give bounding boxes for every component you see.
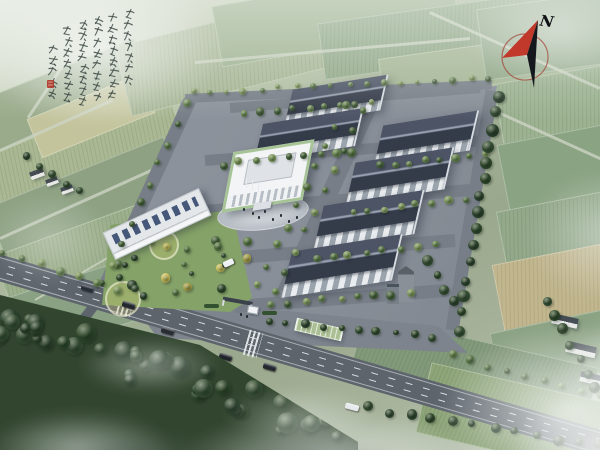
field-path — [195, 37, 470, 63]
tree — [300, 417, 318, 435]
branch-road — [48, 295, 104, 363]
tree — [268, 154, 276, 162]
greenhouse — [294, 317, 344, 340]
calligraphy-stroke — [81, 43, 85, 51]
tree — [543, 297, 552, 306]
tree — [454, 326, 465, 337]
tree — [0, 326, 9, 342]
tree — [482, 150, 490, 158]
tree — [65, 337, 83, 355]
tree — [331, 431, 343, 443]
lane-line — [0, 261, 600, 449]
tree — [99, 280, 105, 286]
solar-panels — [112, 197, 199, 244]
tree — [482, 141, 494, 153]
tree — [30, 327, 40, 337]
tree — [164, 142, 172, 150]
tree — [330, 253, 337, 260]
tree — [411, 200, 418, 207]
farm-field — [0, 136, 187, 265]
tree — [364, 250, 370, 256]
tree — [557, 323, 567, 333]
tree — [183, 283, 192, 292]
tree — [275, 425, 286, 436]
tree — [504, 368, 510, 374]
tree — [354, 293, 361, 300]
silo-tower — [398, 266, 414, 302]
tree — [558, 383, 564, 389]
tree — [351, 101, 357, 107]
tree — [158, 352, 174, 368]
calligraphy-stroke — [95, 83, 99, 90]
tree — [256, 107, 264, 115]
tree — [222, 262, 228, 268]
calligraphy-stroke — [126, 43, 132, 46]
tree — [332, 149, 341, 158]
tree — [245, 380, 263, 398]
fog-patch — [180, 432, 440, 450]
tree — [322, 143, 328, 149]
tree — [451, 154, 459, 162]
farm-field — [347, 314, 599, 439]
tree — [118, 241, 125, 248]
internal-road — [278, 97, 380, 296]
car — [218, 352, 232, 361]
tree — [161, 273, 171, 283]
fog-patch — [530, 290, 600, 450]
tree — [347, 148, 356, 157]
tree — [221, 253, 227, 259]
compass-label: N — [538, 11, 556, 31]
tree — [0, 326, 5, 337]
farm-field — [415, 362, 600, 450]
tree — [318, 295, 325, 302]
tree — [76, 187, 84, 195]
tree — [371, 327, 379, 335]
tree — [360, 107, 367, 114]
tree — [303, 298, 311, 306]
fog-patch — [500, 150, 600, 320]
tree — [381, 207, 388, 214]
tree — [260, 88, 265, 93]
calligraphy-stroke — [95, 23, 99, 25]
tree — [466, 355, 474, 363]
tree — [109, 262, 117, 270]
tree — [295, 83, 300, 88]
tree — [565, 341, 574, 350]
warehouse-facade-doors — [314, 221, 416, 250]
calligraphy-stroke — [65, 77, 70, 78]
tree — [339, 296, 345, 302]
entrance-gate — [221, 295, 263, 318]
garden-ring-path — [149, 230, 179, 260]
calligraphy-stroke — [95, 29, 102, 31]
tree — [322, 187, 328, 193]
tree — [94, 343, 107, 356]
tree — [457, 290, 469, 302]
tree — [191, 388, 205, 402]
warehouse-roof — [376, 111, 477, 155]
tree — [434, 271, 442, 279]
tree — [286, 153, 293, 160]
calligraphy-stroke — [53, 97, 54, 99]
tree — [36, 163, 43, 170]
fog-patch — [480, 380, 600, 450]
tree — [449, 77, 456, 84]
tree — [491, 423, 501, 433]
tree — [444, 196, 452, 204]
tree — [466, 257, 475, 266]
warehouse-facade-doors — [254, 135, 355, 162]
tree — [315, 416, 329, 430]
calligraphy-stroke — [115, 65, 116, 67]
tree — [480, 173, 492, 185]
tree — [273, 240, 281, 248]
guard-booth — [247, 305, 259, 315]
tree — [20, 323, 31, 334]
tree — [468, 420, 475, 427]
tree — [127, 280, 137, 290]
calligraphy-stroke — [80, 94, 85, 95]
tree — [163, 243, 170, 250]
farm-field — [496, 179, 600, 271]
fog-patch — [0, 180, 130, 300]
tree — [486, 124, 499, 137]
tree — [449, 350, 457, 358]
tree — [303, 183, 311, 191]
pedestrian — [296, 216, 298, 219]
tree — [194, 379, 213, 398]
tree — [469, 75, 475, 81]
tree — [149, 350, 169, 370]
calligraphy-stroke — [110, 37, 117, 39]
tree — [307, 105, 314, 112]
calligraphy-seal — [47, 80, 54, 88]
calligraphy-stroke — [112, 47, 115, 55]
tree — [376, 161, 384, 169]
tree — [553, 435, 564, 446]
tree — [422, 156, 429, 163]
tree — [490, 106, 502, 118]
lane-line — [0, 255, 600, 443]
tree — [0, 309, 19, 329]
tree — [485, 76, 491, 82]
calligraphy-stroke — [94, 90, 98, 91]
tree — [577, 355, 585, 363]
tree — [19, 255, 26, 262]
tree — [184, 246, 191, 253]
warehouse-building — [373, 110, 478, 165]
internal-road — [174, 234, 455, 269]
farm-field — [211, 0, 460, 68]
calligraphy-stroke — [111, 14, 114, 22]
dormitory-building — [103, 188, 212, 260]
farm-field — [489, 298, 600, 394]
internal-road — [205, 135, 486, 166]
calligraphy-stroke — [80, 50, 85, 51]
tree — [273, 394, 291, 412]
tree — [407, 289, 415, 297]
calligraphy-stroke — [81, 65, 86, 72]
tree — [93, 279, 101, 287]
fog-patch — [60, 330, 240, 400]
calligraphy-stroke — [96, 94, 100, 101]
tree — [189, 271, 195, 277]
tree — [385, 409, 395, 419]
warehouse-building — [281, 234, 402, 298]
tree — [310, 83, 316, 89]
tree — [321, 413, 335, 427]
fog-patch — [140, 400, 520, 450]
fog-patch — [0, 400, 200, 450]
tree — [466, 153, 472, 159]
tree — [292, 249, 299, 256]
calligraphy-stroke — [124, 23, 132, 25]
tree — [114, 341, 135, 362]
lane-line — [0, 268, 600, 450]
warehouse-facade-doors — [346, 177, 446, 205]
tree — [392, 162, 398, 168]
calligraphy-stroke — [79, 56, 86, 57]
flagpole — [258, 182, 259, 192]
tree — [303, 415, 320, 432]
calligraphy-stroke — [95, 56, 100, 58]
tree — [341, 148, 346, 153]
tree — [277, 412, 299, 434]
farmhouse — [29, 168, 45, 180]
tree — [463, 197, 469, 203]
tree — [386, 291, 395, 300]
tree — [597, 392, 600, 399]
pedestrian — [240, 313, 242, 316]
calligraphy-stroke — [82, 21, 86, 28]
tree — [300, 152, 307, 159]
car — [160, 326, 174, 335]
aerial-site-rendering: N — [0, 0, 600, 450]
car — [262, 362, 276, 371]
crosswalk — [116, 289, 137, 318]
office-plaza — [215, 191, 310, 236]
tree — [16, 326, 34, 344]
farm-field — [114, 0, 337, 117]
tree — [449, 296, 459, 306]
tree — [281, 269, 288, 276]
farm-field — [0, 258, 148, 364]
tree — [24, 314, 35, 325]
gate-pillar — [249, 304, 252, 310]
tree — [468, 240, 478, 250]
fog-patch — [200, 380, 400, 450]
tree — [131, 285, 138, 292]
tree — [318, 151, 324, 157]
pedestrian — [280, 214, 282, 217]
tree — [398, 246, 405, 253]
tree — [457, 307, 466, 316]
farmhouse — [551, 313, 579, 329]
tree — [432, 241, 439, 248]
tree — [432, 79, 437, 84]
tree — [311, 163, 318, 170]
tree — [113, 286, 122, 295]
tree — [301, 319, 310, 328]
internal-road — [92, 97, 196, 302]
calligraphy-stroke — [100, 24, 101, 26]
pedestrian — [288, 220, 290, 223]
fog-patch — [30, 425, 250, 450]
gate-hedge — [204, 304, 219, 308]
tree — [320, 324, 327, 331]
tree — [253, 157, 261, 165]
tree — [172, 289, 179, 296]
calligraphy-stroke — [49, 46, 53, 53]
tree — [471, 223, 482, 234]
calligraphy-stroke — [66, 82, 71, 90]
tree — [233, 404, 248, 419]
tree — [140, 292, 148, 300]
tree — [122, 262, 128, 268]
calligraphy-stroke — [70, 45, 71, 47]
tree — [339, 325, 345, 331]
tree — [428, 334, 436, 342]
tree — [321, 103, 327, 109]
tree — [378, 246, 385, 253]
office-entrance-canopy — [252, 201, 271, 211]
pedestrian — [243, 208, 245, 211]
tree — [289, 105, 295, 111]
tree — [328, 83, 332, 87]
pedestrian — [246, 315, 248, 318]
tree — [124, 369, 135, 380]
warehouse-roof — [284, 234, 400, 285]
car — [121, 300, 135, 309]
tree — [584, 370, 593, 379]
tree — [267, 301, 274, 308]
warehouse-building — [346, 147, 454, 205]
tree — [27, 314, 43, 330]
calligraphy-stroke — [94, 95, 100, 97]
tree — [272, 288, 279, 295]
car — [81, 284, 94, 292]
tree — [76, 323, 96, 343]
calligraphy-stroke — [109, 31, 113, 33]
tree — [521, 373, 528, 380]
tree — [234, 157, 242, 165]
warehouse-roof — [286, 75, 386, 116]
farmhouse — [565, 341, 597, 358]
calligraphy-stroke — [126, 65, 129, 72]
tree — [549, 310, 560, 321]
warehouse-roof — [316, 190, 422, 238]
tree — [75, 272, 83, 280]
tree — [533, 431, 541, 439]
tree — [224, 398, 240, 414]
tree — [422, 255, 433, 266]
warehouse-building — [314, 190, 425, 250]
tree — [207, 90, 212, 95]
tree — [411, 330, 419, 338]
main-road — [0, 253, 600, 450]
tree — [56, 267, 65, 276]
flagpole — [252, 180, 253, 190]
warehouse-roof — [348, 147, 452, 193]
field-path — [471, 99, 600, 159]
tree — [474, 191, 484, 201]
warehouse-facade-doors — [373, 139, 470, 166]
tree — [428, 200, 436, 208]
tree — [139, 359, 151, 371]
calligraphy-stroke — [111, 82, 119, 84]
gate-hedge — [262, 311, 277, 315]
office-window-band — [227, 184, 301, 207]
internal-road — [446, 89, 499, 331]
gate-pillar — [222, 300, 225, 306]
tree — [48, 170, 56, 178]
tree — [406, 161, 413, 168]
tree — [301, 227, 306, 232]
calligraphy-stroke — [93, 61, 98, 69]
dormitory-facade — [113, 210, 210, 259]
car — [344, 402, 359, 411]
tree — [594, 439, 600, 448]
tree — [116, 274, 123, 281]
tree — [23, 152, 30, 159]
pedestrian — [252, 212, 254, 215]
calligraphy-stroke — [79, 33, 86, 35]
calligraphy-stroke — [110, 54, 114, 56]
tree — [436, 157, 442, 163]
tree — [284, 224, 292, 232]
field-path — [0, 165, 161, 239]
tree — [425, 413, 435, 423]
tree — [0, 324, 7, 346]
farm-field — [497, 112, 600, 215]
tree — [343, 251, 351, 259]
gate-canopy — [223, 297, 253, 306]
tree — [243, 254, 252, 263]
tree — [415, 80, 419, 84]
tree — [192, 384, 203, 395]
tree — [313, 255, 320, 262]
tree — [407, 409, 418, 420]
warehouse-building — [254, 108, 363, 162]
tree — [216, 264, 225, 273]
tree — [448, 416, 459, 427]
pedestrian — [272, 218, 274, 221]
tree — [461, 277, 470, 286]
office-roof-panel — [243, 153, 296, 186]
tree — [293, 202, 299, 208]
tree — [589, 382, 600, 393]
tree — [217, 284, 226, 293]
internal-road — [190, 184, 471, 218]
tree — [342, 101, 349, 108]
tree — [254, 281, 260, 287]
calligraphy-stroke — [50, 57, 55, 64]
calligraphy-stroke — [127, 10, 131, 18]
internal-road — [230, 83, 481, 113]
flagpole — [246, 178, 247, 188]
calligraphy-stroke — [131, 61, 132, 63]
tree — [214, 242, 222, 250]
tree — [275, 84, 280, 89]
calligraphy-stroke — [129, 39, 130, 41]
calligraphy-stroke — [65, 55, 69, 57]
tree — [4, 314, 20, 330]
tree — [30, 321, 43, 334]
fog-patch — [400, 300, 600, 450]
tree — [200, 365, 214, 379]
tree — [351, 209, 357, 215]
